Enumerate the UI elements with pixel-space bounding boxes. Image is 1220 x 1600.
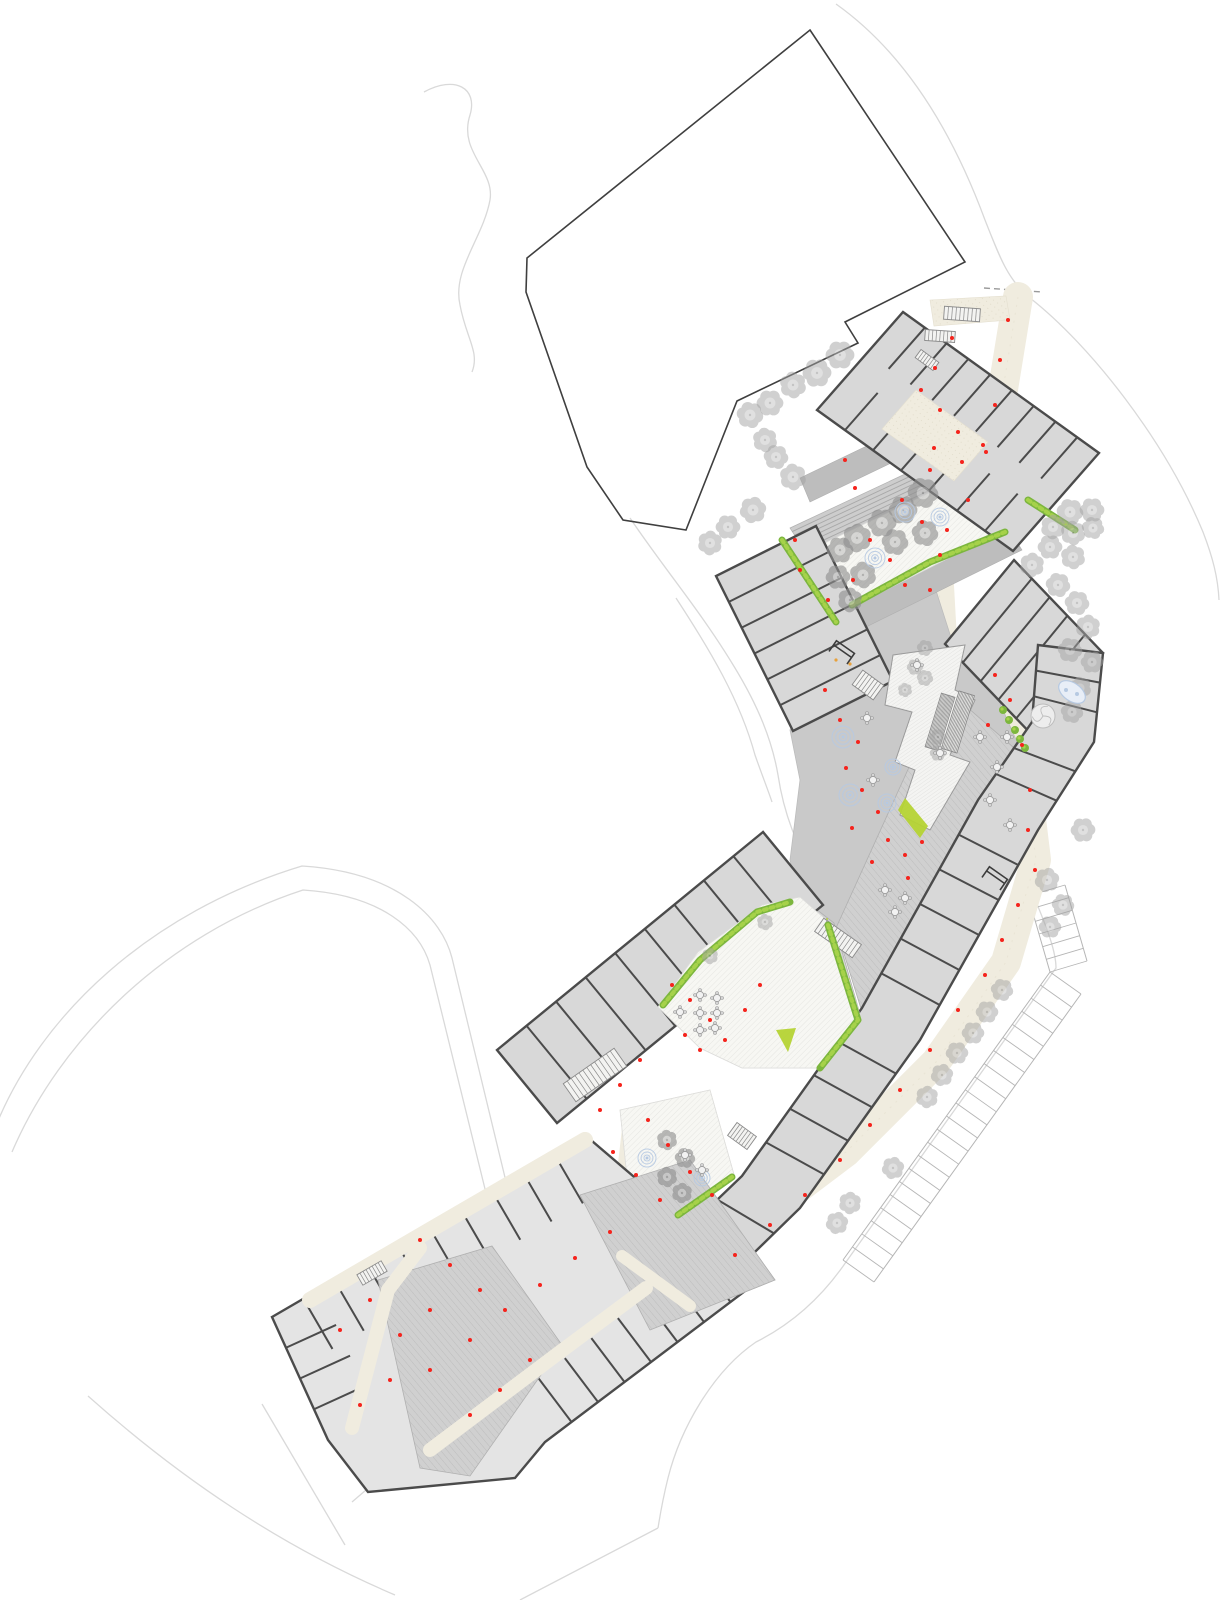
red-marker-dot <box>886 838 890 842</box>
chair <box>1006 741 1009 744</box>
red-marker-dot <box>938 553 942 557</box>
chair <box>721 997 724 1000</box>
chair <box>872 784 875 787</box>
chair <box>684 1149 687 1152</box>
chair <box>699 1017 702 1020</box>
parking-stall-line <box>890 1195 921 1217</box>
tree-icon <box>826 342 855 369</box>
red-marker-dot <box>986 723 990 727</box>
red-marker-dot <box>598 1108 602 1112</box>
chair <box>679 1154 682 1157</box>
tree-icon <box>1038 536 1063 559</box>
pond-detail <box>1064 688 1068 692</box>
chair <box>984 799 987 802</box>
chair <box>684 1011 687 1014</box>
red-marker-dot <box>793 538 797 542</box>
chair <box>996 771 999 774</box>
red-marker-dot <box>646 1118 650 1122</box>
tree-icon <box>740 497 766 523</box>
red-marker-dot <box>903 583 907 587</box>
bush-highlight <box>1000 707 1003 710</box>
red-marker-dot <box>478 1288 482 1292</box>
chair <box>884 884 887 887</box>
chair <box>719 1027 722 1030</box>
chair <box>991 766 994 769</box>
tree-icon <box>1061 545 1085 570</box>
parking-stall-line <box>1046 948 1083 959</box>
chair <box>939 757 942 760</box>
tree-icon <box>1082 517 1104 539</box>
chair <box>1009 829 1012 832</box>
chair <box>709 1027 712 1030</box>
red-marker-dot <box>768 1223 772 1227</box>
red-marker-dot <box>920 520 924 524</box>
red-marker-dot <box>966 498 970 502</box>
red-marker-dot <box>900 498 904 502</box>
red-marker-dot <box>1008 698 1012 702</box>
chair <box>714 1032 717 1035</box>
chair <box>689 1154 692 1157</box>
site-plan-drawing <box>0 0 1220 1600</box>
chair <box>879 889 882 892</box>
chair <box>684 1159 687 1162</box>
chair <box>721 1012 724 1015</box>
tree-icon <box>803 359 832 386</box>
fountain <box>638 1149 656 1167</box>
chair <box>989 804 992 807</box>
chair <box>694 1012 697 1015</box>
bush-highlight <box>1006 717 1009 720</box>
chair <box>704 1012 707 1015</box>
chair <box>1011 736 1014 739</box>
red-marker-dot <box>868 538 872 542</box>
red-marker-dot <box>950 336 954 340</box>
chair <box>716 992 719 995</box>
red-marker-dot <box>1028 788 1032 792</box>
red-marker-dot <box>888 558 892 562</box>
chair <box>984 736 987 739</box>
chair <box>704 1029 707 1032</box>
red-marker-dot <box>823 688 827 692</box>
parking-stall-line <box>1022 1011 1053 1033</box>
parking-stall-line <box>918 1155 949 1177</box>
red-marker-dot <box>608 1230 612 1234</box>
bush-highlight <box>1012 727 1015 730</box>
red-marker-dot <box>758 983 762 987</box>
red-marker-dot <box>723 1038 727 1042</box>
chair <box>714 1022 717 1025</box>
chair <box>699 989 702 992</box>
chair <box>911 664 914 667</box>
chair <box>994 799 997 802</box>
red-marker-dot <box>928 588 932 592</box>
tree-icon <box>1071 818 1096 841</box>
chair <box>979 741 982 744</box>
chair <box>1006 731 1009 734</box>
chair <box>674 1011 677 1014</box>
chair <box>716 1017 719 1020</box>
red-marker-dot <box>1020 743 1024 747</box>
tree-icon <box>780 464 806 491</box>
red-marker-dot <box>1033 868 1037 872</box>
red-marker-dot <box>983 973 987 977</box>
parking-stall-line <box>956 1103 987 1125</box>
chair <box>894 916 897 919</box>
red-marker-dot <box>906 876 910 880</box>
road-line <box>424 84 490 372</box>
parking-stall-line <box>909 1168 940 1190</box>
fountain <box>839 784 861 806</box>
red-marker-dot <box>826 598 830 602</box>
parking-stall-line <box>862 1234 893 1256</box>
tree-icon <box>916 1086 937 1109</box>
red-marker-dot <box>960 460 964 464</box>
red-marker-dot <box>710 1193 714 1197</box>
chair <box>711 1012 714 1015</box>
red-marker-dot <box>853 486 857 490</box>
lower-block <box>272 1135 775 1492</box>
chair <box>974 736 977 739</box>
chair <box>894 906 897 909</box>
chair <box>679 1016 682 1019</box>
chair <box>1001 766 1004 769</box>
fountain <box>865 548 885 568</box>
red-marker-dot <box>843 458 847 462</box>
red-marker-dot <box>945 528 949 532</box>
red-marker-dot <box>981 443 985 447</box>
red-marker-dot <box>658 1198 662 1202</box>
tree-icon <box>1065 591 1090 615</box>
chair <box>699 1024 702 1027</box>
red-marker-dot <box>984 450 988 454</box>
red-marker-dot <box>928 468 932 472</box>
tree-icon <box>1052 894 1075 916</box>
chair <box>861 717 864 720</box>
fountain <box>885 759 901 775</box>
fountain <box>895 502 915 522</box>
red-marker-dot <box>368 1298 372 1302</box>
chair <box>694 994 697 997</box>
chair <box>904 892 907 895</box>
chair <box>867 779 870 782</box>
red-marker-dot <box>388 1378 392 1382</box>
red-marker-dot <box>798 568 802 572</box>
red-marker-dot <box>618 1083 622 1087</box>
red-marker-dot <box>733 1253 737 1257</box>
parking-stall-line <box>928 1142 959 1164</box>
tree-icon <box>1046 573 1070 597</box>
chair <box>939 747 942 750</box>
chair <box>706 1169 709 1172</box>
red-marker-dot <box>528 1358 532 1362</box>
parking-stall-line <box>899 1181 930 1203</box>
red-marker-dot <box>670 983 674 987</box>
chair <box>694 1029 697 1032</box>
chair <box>699 1007 702 1010</box>
red-marker-dot <box>860 788 864 792</box>
red-marker-dot <box>898 1088 902 1092</box>
red-marker-dot <box>850 826 854 830</box>
chair <box>1009 819 1012 822</box>
red-marker-dot <box>538 1283 542 1287</box>
red-marker-dot <box>503 1308 507 1312</box>
chair <box>704 994 707 997</box>
red-marker-dot <box>634 1173 638 1177</box>
pond-detail <box>1075 692 1079 696</box>
chair <box>1014 824 1017 827</box>
red-marker-dot <box>358 1403 362 1407</box>
parking-stall-line <box>871 1221 902 1243</box>
chair <box>916 669 919 672</box>
marker-dot <box>834 658 837 661</box>
fountain <box>832 726 854 748</box>
parking-stall-line <box>965 1090 996 1112</box>
stair-symbol <box>925 329 956 342</box>
tree-icon <box>826 1212 848 1234</box>
red-marker-dot <box>856 740 860 744</box>
red-marker-dot <box>938 408 942 412</box>
red-marker-dot <box>920 840 924 844</box>
red-marker-dot <box>928 1048 932 1052</box>
red-marker-dot <box>698 1048 702 1052</box>
chair <box>996 761 999 764</box>
red-marker-dot <box>851 578 855 582</box>
chair <box>899 911 902 914</box>
red-marker-dot <box>611 1150 615 1154</box>
parking-stall-line <box>1050 972 1081 994</box>
red-marker-dot <box>993 673 997 677</box>
chair <box>877 779 880 782</box>
chair <box>1004 824 1007 827</box>
chair <box>989 794 992 797</box>
stair-symbol <box>944 306 981 321</box>
red-marker-dot <box>398 1333 402 1337</box>
red-marker-dot <box>468 1413 472 1417</box>
red-marker-dot <box>468 1338 472 1342</box>
tree-icon <box>716 516 741 539</box>
chair <box>701 1174 704 1177</box>
chair <box>866 712 869 715</box>
red-marker-dot <box>666 1143 670 1147</box>
parking-stall-line <box>975 1077 1006 1099</box>
fountain <box>931 508 949 526</box>
parking-stall-line <box>947 1116 978 1138</box>
buildings-layer <box>272 312 1103 1492</box>
red-marker-dot <box>338 1328 342 1332</box>
chair <box>871 717 874 720</box>
red-marker-dot <box>838 718 842 722</box>
red-marker-dot <box>838 1158 842 1162</box>
parking-stall-line <box>1012 1024 1043 1046</box>
tree-icon <box>839 1192 860 1215</box>
red-marker-dot <box>876 810 880 814</box>
chair <box>899 897 902 900</box>
red-marker-dot <box>993 403 997 407</box>
parking-stall-line <box>881 1208 912 1230</box>
parking-stall-line <box>937 1129 968 1151</box>
red-marker-dot <box>428 1368 432 1372</box>
red-marker-dot <box>868 1123 872 1127</box>
red-marker-dot <box>1026 828 1030 832</box>
chair <box>711 997 714 1000</box>
chair <box>904 902 907 905</box>
site-plan-page <box>0 0 1220 1600</box>
chair <box>1001 736 1004 739</box>
red-marker-dot <box>418 1238 422 1242</box>
red-marker-dot <box>1016 903 1020 907</box>
red-marker-dot <box>932 446 936 450</box>
chair <box>872 774 875 777</box>
circular-feature <box>1031 704 1055 728</box>
red-marker-dot <box>870 860 874 864</box>
chair <box>696 1169 699 1172</box>
red-marker-dot <box>498 1388 502 1392</box>
chair <box>679 1006 682 1009</box>
parking-stall-line <box>1031 998 1062 1020</box>
chair <box>909 897 912 900</box>
red-marker-dot <box>743 1008 747 1012</box>
parking-stall-line <box>1041 985 1072 1007</box>
stair-symbol <box>728 1122 757 1149</box>
parking-stall-line <box>984 1064 1015 1086</box>
red-marker-dot <box>638 1058 642 1062</box>
red-marker-dot <box>688 998 692 1002</box>
chair <box>916 659 919 662</box>
red-marker-dot <box>1006 318 1010 322</box>
red-marker-dot <box>903 853 907 857</box>
chair <box>866 722 869 725</box>
chair <box>934 752 937 755</box>
red-marker-dot <box>688 1170 692 1174</box>
red-marker-dot <box>573 1256 577 1260</box>
red-marker-dot <box>1000 938 1004 942</box>
chair <box>884 894 887 897</box>
red-marker-dot <box>708 1018 712 1022</box>
red-marker-dot <box>803 1193 807 1197</box>
red-marker-dot <box>956 1008 960 1012</box>
tree-icon <box>780 372 806 399</box>
fountain <box>878 794 896 812</box>
parking-stall-line <box>843 1260 874 1282</box>
tree-icon <box>698 531 721 556</box>
tree-icon <box>882 1157 904 1179</box>
chair <box>699 1034 702 1037</box>
chair <box>701 1164 704 1167</box>
red-marker-dot <box>919 388 923 392</box>
chair <box>979 731 982 734</box>
parking-stall-line <box>1003 1037 1034 1059</box>
chair <box>921 664 924 667</box>
marker-dot <box>848 662 851 665</box>
red-marker-dot <box>683 1033 687 1037</box>
chair <box>716 1007 719 1010</box>
chair <box>944 752 947 755</box>
chair <box>716 1002 719 1005</box>
red-marker-dot <box>844 766 848 770</box>
tree-icon <box>737 402 763 428</box>
parking-stall-line <box>852 1247 883 1269</box>
parking-stall-line <box>994 1051 1025 1073</box>
red-marker-dot <box>933 366 937 370</box>
red-marker-dot <box>428 1308 432 1312</box>
chair <box>889 889 892 892</box>
chair <box>889 911 892 914</box>
chair <box>699 999 702 1002</box>
red-marker-dot <box>998 358 1002 362</box>
road-line <box>520 1528 658 1600</box>
red-marker-dot <box>956 430 960 434</box>
bush-highlight <box>1017 736 1020 739</box>
red-marker-dot <box>448 1263 452 1267</box>
